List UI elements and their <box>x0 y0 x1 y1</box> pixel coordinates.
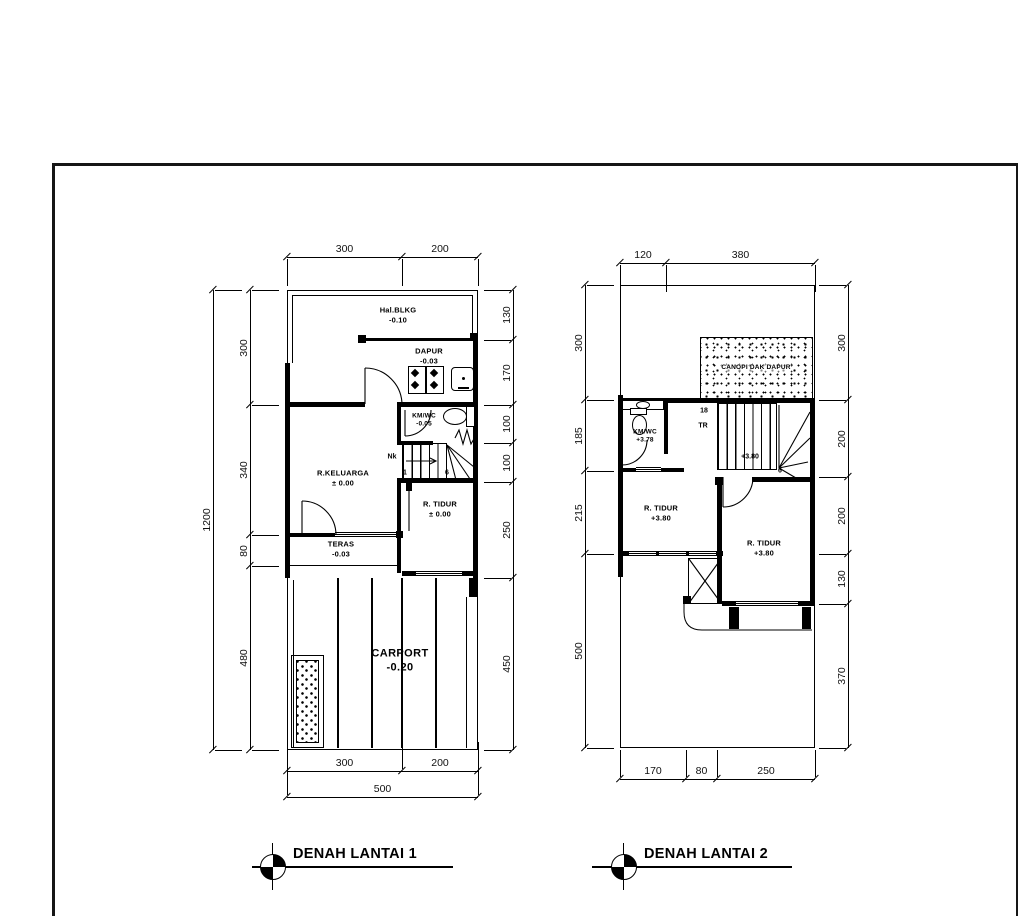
dim-extension <box>819 477 846 478</box>
dim-label: 100 <box>501 454 513 472</box>
dim-extension <box>402 259 403 286</box>
dim-line <box>585 285 586 748</box>
plan2-bed1-window <box>689 551 716 556</box>
plan2-wall-post <box>802 607 811 629</box>
dim-extension <box>252 566 279 567</box>
dim-extension <box>587 554 614 555</box>
dim-extension <box>484 578 511 579</box>
dim-label: 130 <box>501 306 513 324</box>
stair-label-nk: Nk <box>388 454 397 461</box>
dim-line <box>287 257 478 258</box>
plan1-yard-wall-line <box>292 295 473 296</box>
dim-label: 500 <box>287 783 478 795</box>
dim-line <box>250 290 251 750</box>
plan1-bedroom-window <box>416 571 462 576</box>
dim-label: 450 <box>501 655 513 673</box>
dim-label: 185 <box>573 427 585 445</box>
stair-label-tr: TR <box>698 423 707 430</box>
plan1-wall-post <box>358 335 366 343</box>
plan2-bed2-window <box>736 601 798 606</box>
plan1-wall <box>362 338 478 341</box>
room-label-teras: TERAS-0.03 <box>328 539 354 559</box>
dim-label: 300 <box>287 243 402 255</box>
plan2-wall-post <box>683 596 691 604</box>
plan1-wall <box>287 402 365 407</box>
dim-extension <box>819 285 846 286</box>
plan1-title: DENAH LANTAI 1 <box>293 846 417 862</box>
room-label-carport: CARPORT-0.20 <box>371 647 428 676</box>
room-label-kmwc1: KM/WC-0.05 <box>412 413 436 430</box>
dim-extension <box>484 290 511 291</box>
dim-line <box>287 771 478 772</box>
plan2-wall-post <box>729 607 739 629</box>
stair-label-last: 6 <box>445 470 449 477</box>
plan2-title: DENAH LANTAI 2 <box>644 846 768 862</box>
plan2-wall <box>618 395 623 577</box>
plan1-yard-wall-line <box>472 295 473 335</box>
room-label-tidur-kiri: R. TIDUR+3.80 <box>644 503 678 523</box>
dim-extension <box>215 750 242 751</box>
title1-datum-icon <box>260 854 286 880</box>
stair-label-level: +3.80 <box>741 454 759 461</box>
room-label-hal-blkg: Hal.BLKG-0.10 <box>380 305 417 325</box>
plan2-bed1-window <box>629 551 656 556</box>
dim-label: 80 <box>238 545 250 557</box>
dim-label: 200 <box>836 430 848 448</box>
dim-extension <box>620 265 621 292</box>
dim-line <box>513 290 514 750</box>
dim-label: 480 <box>238 649 250 667</box>
plan1-teras-edge <box>287 565 400 566</box>
dim-extension <box>819 400 846 401</box>
dim-label: 130 <box>836 570 848 588</box>
dim-line <box>620 263 815 264</box>
room-label-tidur-kanan: R. TIDUR+3.80 <box>747 538 781 558</box>
plan1-wall <box>285 363 290 578</box>
plan1-carport-strip <box>435 578 437 748</box>
plan2-wall <box>664 400 668 454</box>
plan2-void-shaft <box>688 558 722 604</box>
dim-extension <box>819 748 846 749</box>
plan1-wall <box>287 533 335 537</box>
dim-extension <box>252 290 279 291</box>
kitchen-sink-icon <box>451 367 474 391</box>
dim-extension <box>478 768 479 795</box>
title2-datum-icon <box>611 854 637 880</box>
dim-extension <box>484 482 511 483</box>
dim-extension <box>819 554 846 555</box>
dim-label: 200 <box>402 757 478 769</box>
dim-extension <box>252 405 279 406</box>
plan1-teras-window <box>335 532 397 537</box>
sheet-border <box>52 163 1018 916</box>
dim-label: 170 <box>620 765 686 777</box>
room-label-kmwc2: KM/WC+3.78 <box>633 429 657 446</box>
dim-extension <box>819 604 846 605</box>
dim-label: 215 <box>573 504 585 522</box>
plan1-stair-treads <box>402 443 447 480</box>
dim-line <box>848 285 849 748</box>
plan1-wall <box>397 483 401 573</box>
dim-line <box>213 290 214 750</box>
dim-label: 100 <box>501 415 513 433</box>
dim-label: 380 <box>666 249 815 261</box>
dim-label: 340 <box>238 461 250 479</box>
dim-extension <box>587 400 614 401</box>
dim-label: 1200 <box>201 508 213 531</box>
dim-label: 300 <box>836 334 848 352</box>
dim-label: 300 <box>287 757 402 769</box>
dim-label: 300 <box>573 334 585 352</box>
stair-label-first: 1 <box>403 470 407 477</box>
dim-extension <box>215 290 242 291</box>
stove-icon <box>408 366 444 394</box>
dim-label: 250 <box>501 521 513 539</box>
dim-extension <box>478 742 479 769</box>
dim-label: 80 <box>686 765 717 777</box>
dim-label: 200 <box>836 507 848 525</box>
plan2-bed1-window <box>659 551 686 556</box>
plan1-yard-wall-line <box>292 295 293 363</box>
dim-extension <box>587 285 614 286</box>
room-label-canopi: CANOPI DAK DAPUR <box>720 364 791 372</box>
plan1-wall-cap <box>469 578 478 597</box>
plan1-wall-post <box>396 531 403 538</box>
dim-label: 500 <box>573 642 585 660</box>
dim-extension <box>666 265 667 292</box>
toilet-tank-icon <box>466 406 475 427</box>
dim-label: 200 <box>402 243 478 255</box>
room-label-keluarga: R.KELUARGA± 0.00 <box>317 468 369 488</box>
plan2-wall <box>810 400 815 604</box>
dim-extension <box>484 405 511 406</box>
dim-label: 170 <box>501 364 513 382</box>
plan2-wall <box>752 477 815 482</box>
dim-extension <box>587 748 614 749</box>
plan1-carport-edge <box>466 597 467 748</box>
dim-extension <box>484 340 511 341</box>
plan1-planter-fill <box>296 660 319 743</box>
stair-label-last: 6 <box>778 468 782 475</box>
dim-extension <box>587 471 614 472</box>
dim-extension <box>484 750 511 751</box>
dim-extension <box>252 750 279 751</box>
plan2-kmwc-window <box>636 467 661 472</box>
dim-line <box>287 797 478 798</box>
stair-label-count: 18 <box>700 408 708 415</box>
room-label-tidur1: R. TIDUR± 0.00 <box>423 499 457 519</box>
plan1-wall <box>397 405 401 445</box>
floorplan-sheet: Hal.BLKG-0.10 DAPUR-0.03 KM/WC-0.05 R.KE… <box>0 0 1024 916</box>
toilet-icon <box>443 408 467 425</box>
room-label-dapur: DAPUR-0.03 <box>415 346 443 366</box>
dim-extension <box>815 265 816 292</box>
dim-label: 250 <box>717 765 815 777</box>
toilet-tank-icon <box>630 408 647 415</box>
dim-label: 300 <box>238 339 250 357</box>
dim-extension <box>815 750 816 777</box>
dim-label: 370 <box>836 667 848 685</box>
plan1-carport-strip <box>337 578 339 748</box>
dim-label: 120 <box>620 249 666 261</box>
dim-extension <box>484 443 511 444</box>
dim-extension <box>252 535 279 536</box>
dim-extension <box>478 259 479 286</box>
dim-extension <box>287 259 288 286</box>
